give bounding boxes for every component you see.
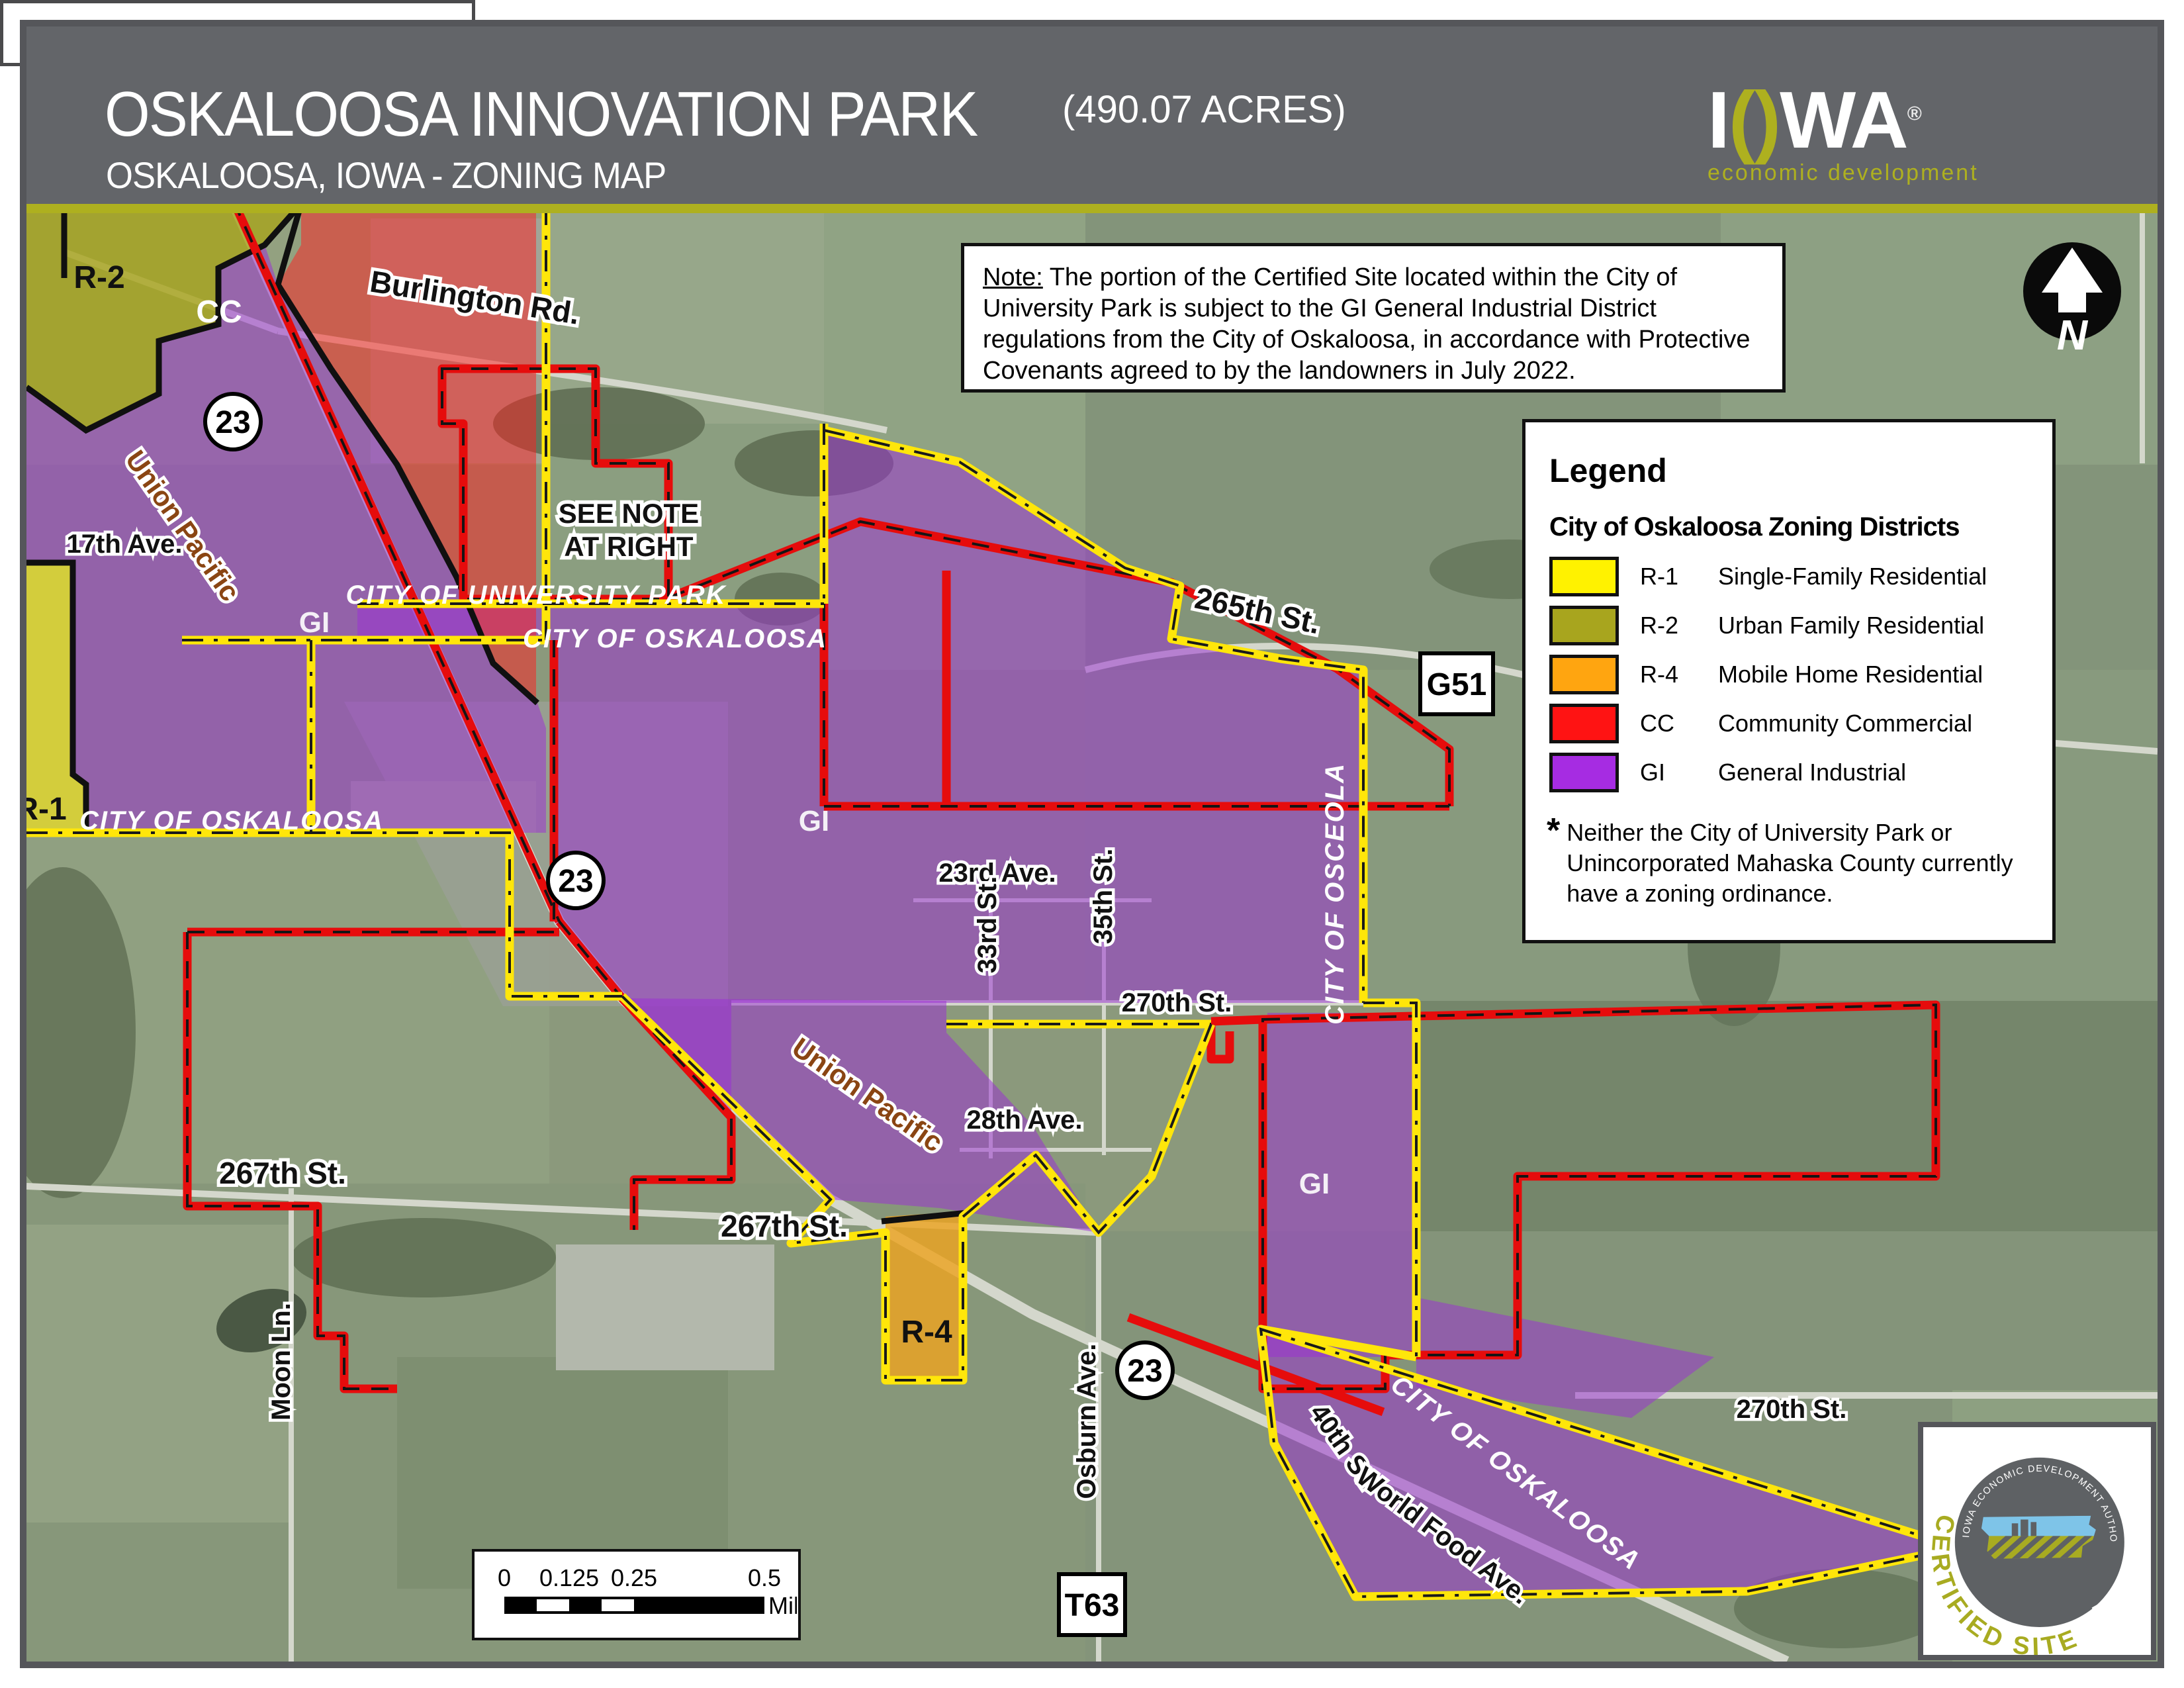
logo-wa: WA <box>1780 75 1907 165</box>
scale-tick-05: 0.5 <box>748 1564 781 1591</box>
header-accent-line <box>26 204 2158 213</box>
legend-label-cc: Community Commercial <box>1718 710 1972 737</box>
legend-label-gi: General Industrial <box>1718 759 1906 786</box>
legend-code-r4: R-4 <box>1640 661 1718 688</box>
legend-label-r2: Urban Family Residential <box>1718 612 1984 639</box>
scale-unit: Miles <box>768 1592 797 1619</box>
scale-tick-025: 0.25 <box>611 1564 657 1591</box>
legend-row-r4: R-4 Mobile Home Residential <box>1549 656 2032 693</box>
swatch-gi <box>1549 753 1619 792</box>
legend-row-r2: R-2 Urban Family Residential <box>1549 607 2032 644</box>
iowa-economic-development-logo: I()WA® economic development <box>1707 79 2025 184</box>
logo-registered-mark: ® <box>1907 103 1921 124</box>
footnote-line3: have a zoning ordinance. <box>1567 878 2013 909</box>
swatch-r2 <box>1549 606 1619 645</box>
acreage-label: (490.07 ACRES) <box>1062 87 1346 132</box>
swatch-r1 <box>1549 557 1619 596</box>
header-bar: OSKALOOSA INNOVATION PARK (490.07 ACRES)… <box>26 26 2158 204</box>
page-subtitle: OSKALOOSA, IOWA - ZONING MAP <box>106 154 666 197</box>
legend-label-r1: Single-Family Residential <box>1718 563 1987 590</box>
legend-code-r1: R-1 <box>1640 563 1718 590</box>
scale-tick-0: 0 <box>498 1564 511 1591</box>
scale-bar-graphic: 0 0.125 0.25 0.5 Miles <box>475 1552 797 1636</box>
certified-site-seal: IOWA ECONOMIC DEVELOPMENT AUTHORITY CERT… <box>1923 1427 2151 1655</box>
note-box: Note: The portion of the Certified Site … <box>961 243 1786 393</box>
legend-code-gi: GI <box>1640 759 1718 786</box>
footnote-line1: Neither the City of University Park or <box>1567 818 2013 848</box>
footnote-line2: Unincorporated Mahaska County currently <box>1567 848 2013 878</box>
footnote-star: * <box>1547 818 1560 909</box>
logo-i: I <box>1707 75 1729 165</box>
note-body: The portion of the Certified Site locate… <box>983 263 1751 385</box>
legend-code-cc: CC <box>1640 710 1718 737</box>
logo-tagline: economic development <box>1707 162 2025 184</box>
swatch-cc <box>1549 704 1619 743</box>
page-title: OSKALOOSA INNOVATION PARK <box>105 78 977 151</box>
swatch-r4 <box>1549 655 1619 694</box>
legend-row-gi: GI General Industrial <box>1549 754 2032 791</box>
zoning-map-page: Burlington Rd. R-2 CC Union Pacific 17th… <box>0 0 2184 1688</box>
legend-code-r2: R-2 <box>1640 612 1718 639</box>
scale-tick-0125: 0.125 <box>539 1564 599 1591</box>
legend: Legend City of Oskaloosa Zoning District… <box>1522 419 2056 943</box>
iowa-logo-word: I()WA® <box>1707 79 2025 160</box>
legend-label-r4: Mobile Home Residential <box>1718 661 1983 688</box>
legend-subtitle: City of Oskaloosa Zoning Districts <box>1549 512 2032 542</box>
legend-row-cc: CC Community Commercial <box>1549 705 2032 742</box>
note-label: Note: <box>983 263 1043 291</box>
logo-o: () <box>1729 75 1780 165</box>
legend-row-r1: R-1 Single-Family Residential <box>1549 558 2032 595</box>
legend-footnote: * Neither the City of University Park or… <box>1547 818 2032 909</box>
certified-site-logo: IOWA ECONOMIC DEVELOPMENT AUTHORITY CERT… <box>1918 1422 2156 1660</box>
scale-bar: 0 0.125 0.25 0.5 Miles <box>472 1549 801 1640</box>
legend-title: Legend <box>1549 451 2032 490</box>
